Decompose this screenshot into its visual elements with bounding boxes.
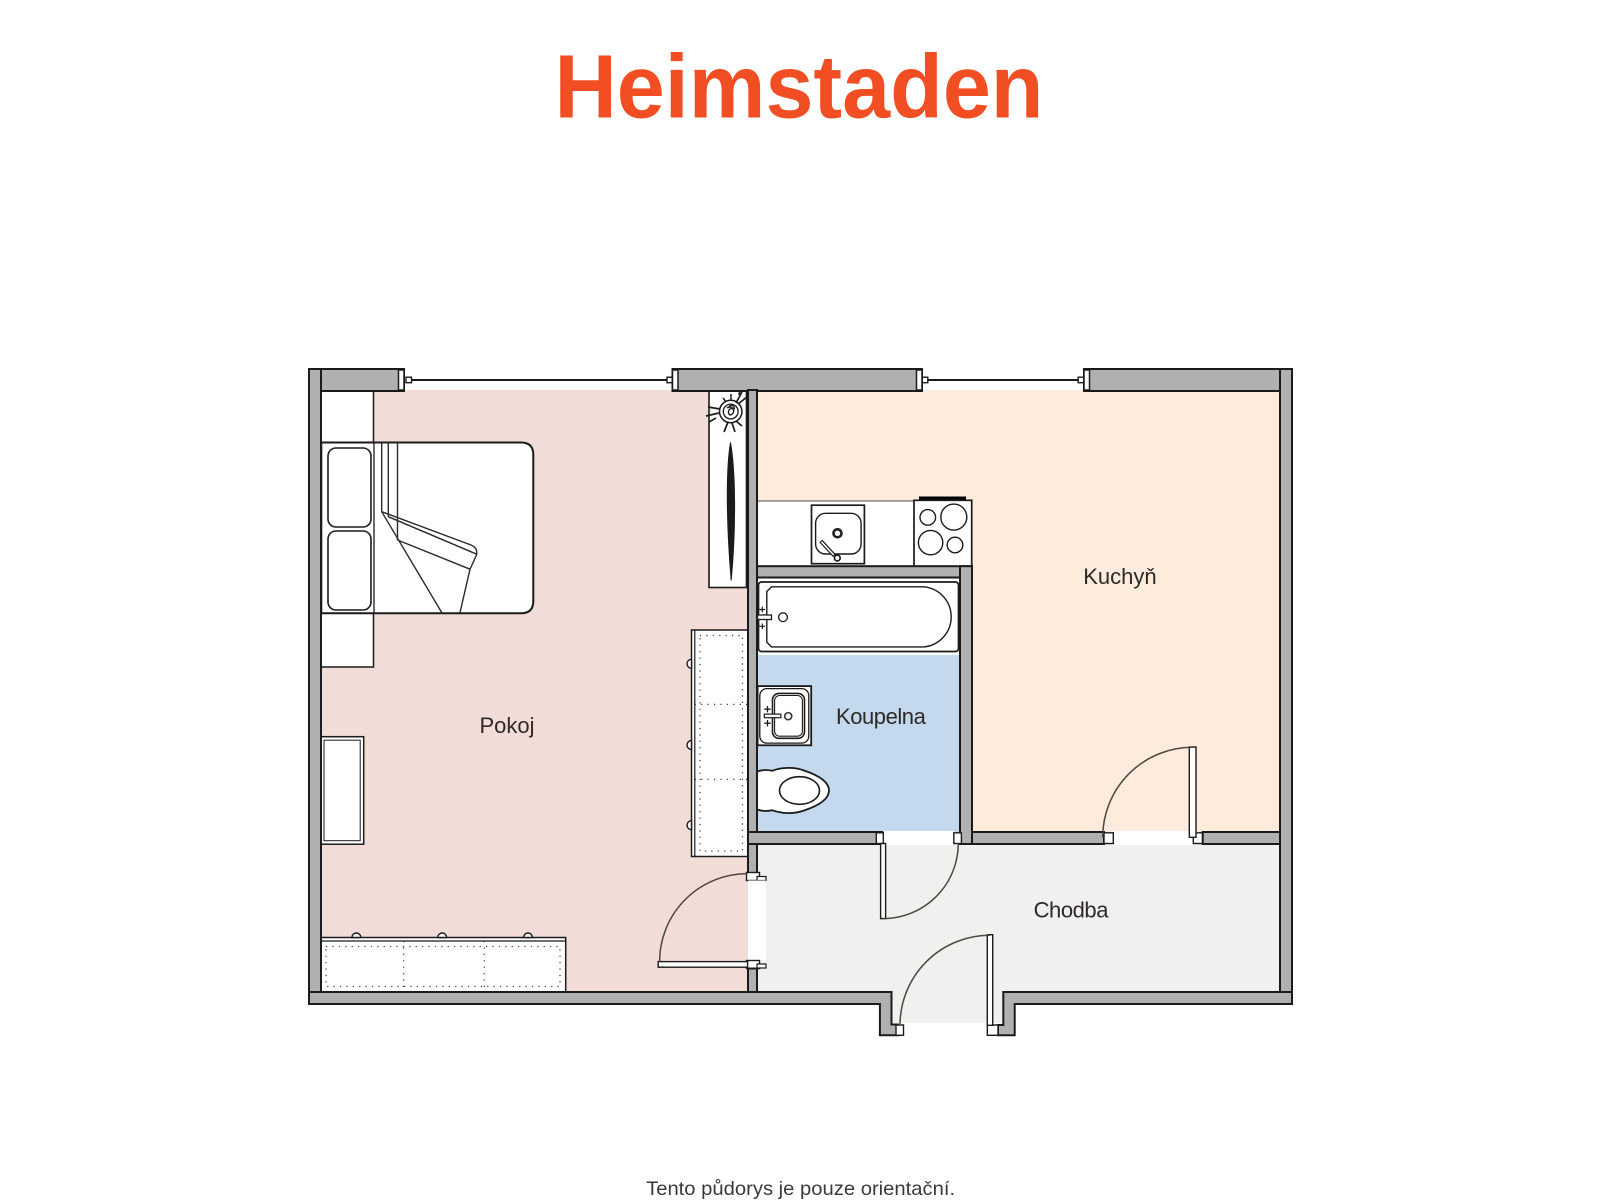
svg-text:Koupelna: Koupelna [836, 704, 927, 729]
svg-text:Tento půdorys je pouze orienta: Tento půdorys je pouze orientační. [646, 1178, 955, 1200]
svg-text:Kuchyň: Kuchyň [1083, 564, 1156, 589]
svg-text:Pokoj: Pokoj [479, 713, 534, 738]
svg-text:Chodba: Chodba [1034, 898, 1110, 923]
svg-text:Heimstaden: Heimstaden [555, 38, 1044, 138]
